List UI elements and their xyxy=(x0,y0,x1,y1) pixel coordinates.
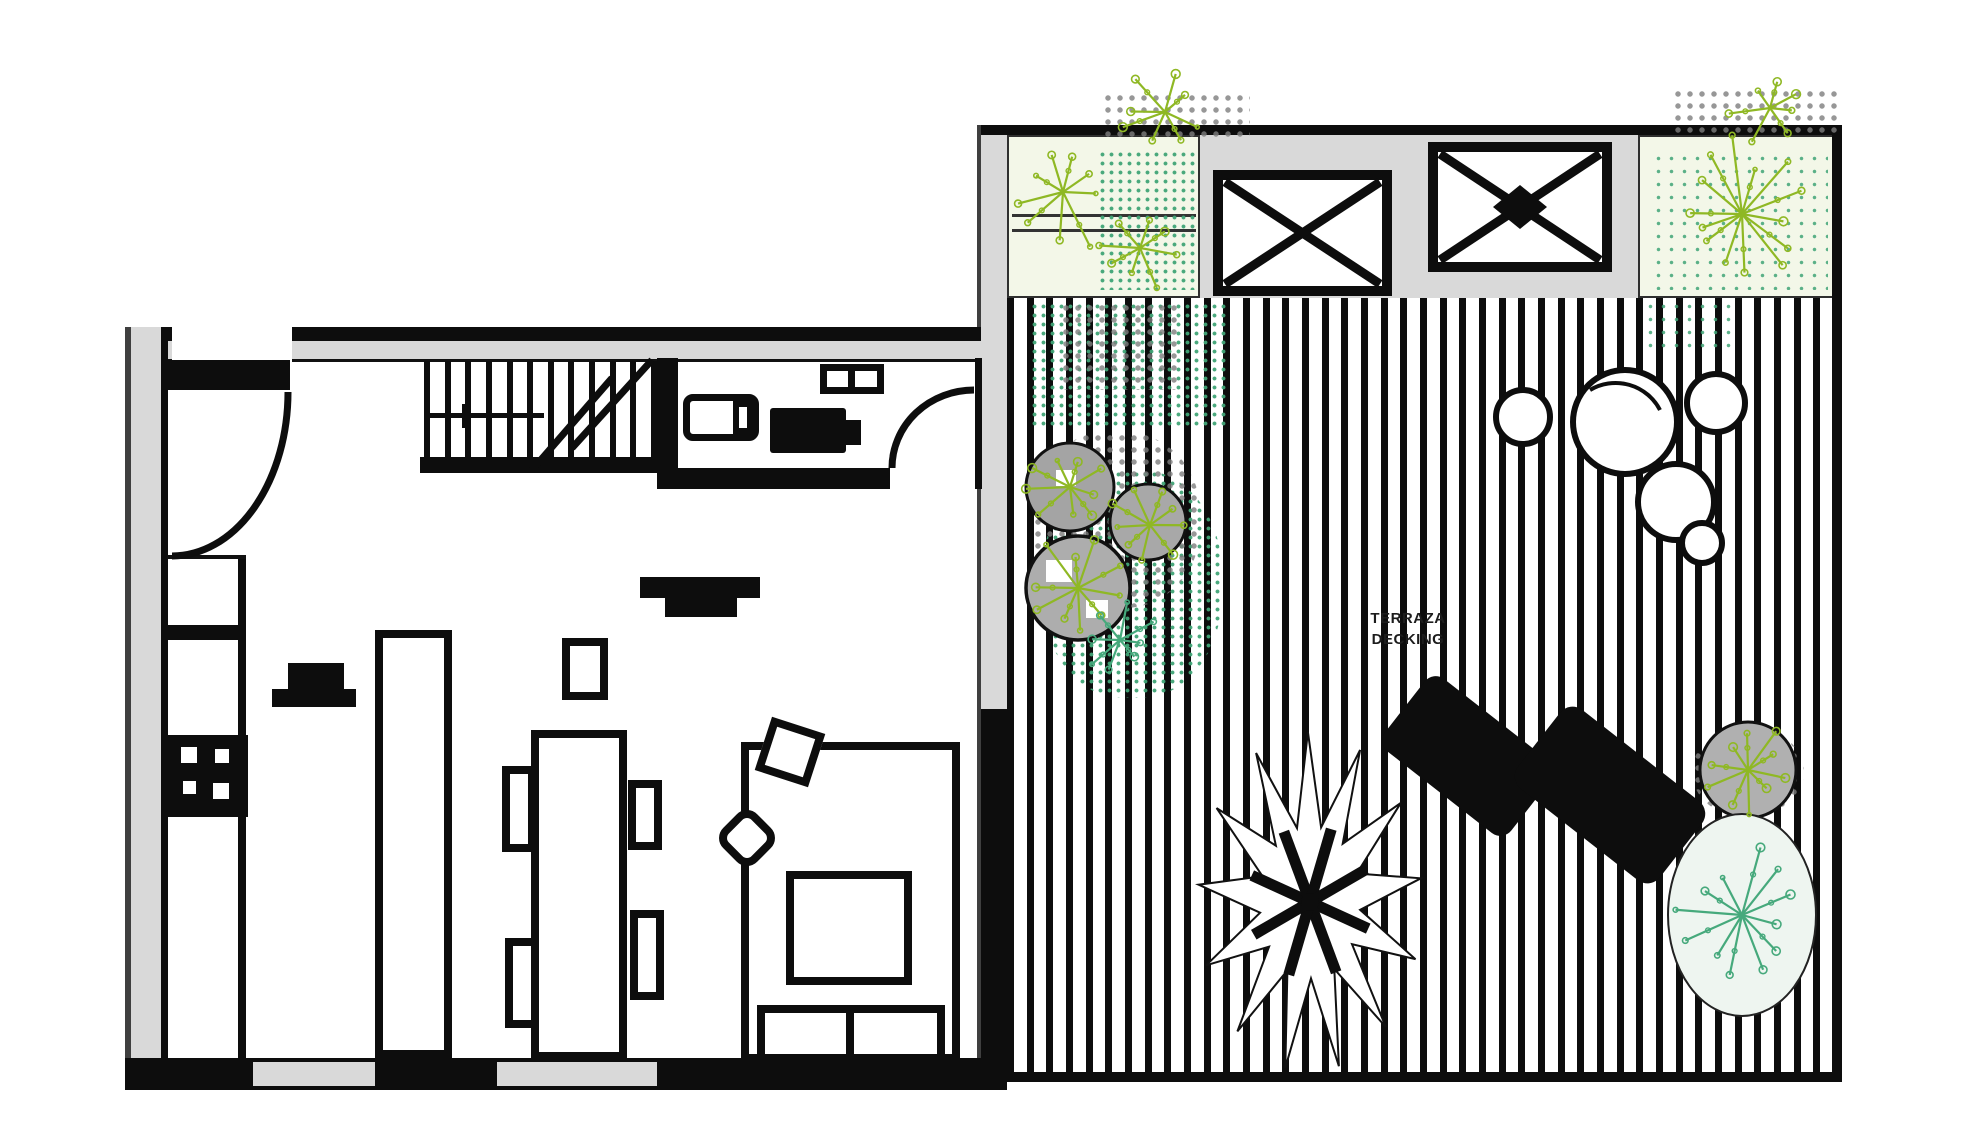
floor-plan: TERRAZA DECKING xyxy=(0,0,1964,1127)
stair-tread xyxy=(527,361,533,458)
deck-board xyxy=(1479,298,1486,1075)
planter-right-foliage xyxy=(1652,152,1828,290)
entry-door-leaf xyxy=(166,360,290,390)
deck-board xyxy=(1597,298,1604,1075)
deck-board xyxy=(1577,298,1584,1075)
deck-board xyxy=(1243,298,1250,1075)
overhang-foliage-left xyxy=(1102,92,1250,138)
bottom-right-shrub-texture xyxy=(1670,815,1816,1015)
divider-wall-lower xyxy=(981,709,1007,1085)
deck-board xyxy=(1636,298,1643,1075)
bottom-right-shrub-shadow xyxy=(1692,726,1804,818)
house-left-wall-innerline xyxy=(161,327,168,1090)
dining-chair-right-2 xyxy=(630,910,664,1000)
bathroom-window-mullion xyxy=(848,364,855,394)
kitchen-cabinet-divider xyxy=(167,625,246,640)
cooktop-burner-1 xyxy=(181,747,197,763)
deck-label-line1: TERRAZA xyxy=(1358,608,1458,629)
sofa-cushion-divider xyxy=(846,1005,854,1062)
dining-chair-left-2 xyxy=(505,938,539,1028)
deck-bottom-edge xyxy=(1007,1072,1842,1082)
deck-board xyxy=(1361,298,1368,1075)
dining-chair-top xyxy=(562,638,608,700)
planter-left-foliage xyxy=(1098,150,1196,290)
staircase-rail-tick xyxy=(462,404,467,428)
stair-tread xyxy=(589,361,595,458)
kitchen-cabinet-topline xyxy=(167,555,246,559)
stair-tread xyxy=(548,361,554,458)
deck-board xyxy=(1499,298,1506,1075)
bottom-window-1 xyxy=(253,1062,375,1086)
stair-tread xyxy=(445,361,451,458)
stair-tread xyxy=(610,361,616,458)
deck-board xyxy=(1459,298,1466,1075)
coffee-table xyxy=(786,871,912,985)
bathroom-right-line xyxy=(975,358,982,489)
cooktop-burner-2 xyxy=(215,749,229,763)
divider-wall-upper xyxy=(981,135,1007,709)
cooktop-burner-4 xyxy=(213,783,229,799)
deck-board xyxy=(1656,298,1663,1075)
stair-tread xyxy=(568,361,574,458)
dining-chair-left-1 xyxy=(502,766,536,852)
cooktop-burner-3 xyxy=(183,781,196,794)
deck-board xyxy=(1813,298,1820,1075)
staircase-bottom-stringer xyxy=(420,457,660,473)
bathroom-door-arc xyxy=(892,390,974,468)
tv-sideboard-top xyxy=(640,577,760,598)
entry-opening xyxy=(172,325,292,362)
deck-board xyxy=(1518,298,1525,1075)
deck-board xyxy=(1558,298,1565,1075)
planter-left-spill-shadow xyxy=(1060,302,1180,390)
staircase-treads xyxy=(424,361,657,458)
deck-board xyxy=(1538,298,1545,1075)
deck-board xyxy=(1400,298,1407,1075)
stair-tread xyxy=(424,361,430,458)
bathroom-sink-tab xyxy=(845,420,861,445)
toilet-cistern xyxy=(733,401,753,434)
deck-right-edge xyxy=(1832,125,1842,1082)
deck-board xyxy=(1617,298,1624,1075)
bathroom-bottom-wall xyxy=(657,468,890,489)
kitchen-island xyxy=(375,630,452,1058)
bottom-window-2 xyxy=(497,1062,657,1086)
deck-board xyxy=(1341,298,1348,1075)
overhang-foliage-right xyxy=(1672,88,1840,138)
kitchen-sink-shadow-base xyxy=(272,689,356,707)
tv-sideboard-base xyxy=(665,598,737,617)
dining-chair-right-1 xyxy=(628,780,662,850)
deck-board xyxy=(1263,298,1270,1075)
bathroom-sink xyxy=(770,408,846,453)
deck-board xyxy=(1381,298,1388,1075)
planter-right-spill xyxy=(1644,300,1734,348)
entry-door-arc xyxy=(172,392,288,556)
skylight-2 xyxy=(1428,142,1612,272)
stair-tread xyxy=(630,361,636,458)
house-left-wall-poche xyxy=(131,327,161,1090)
deck-board xyxy=(1007,298,1014,1075)
skylight-1 xyxy=(1213,170,1392,296)
stair-tread xyxy=(507,361,513,458)
stair-tread xyxy=(486,361,492,458)
cooktop xyxy=(167,735,248,817)
deck-board xyxy=(1322,298,1329,1075)
kitchen-sink-shadow-top xyxy=(288,663,344,689)
deck-board xyxy=(1282,298,1289,1075)
shrub-cluster-shadow xyxy=(1032,432,1200,608)
deck-label: TERRAZA DECKING xyxy=(1358,608,1458,656)
dining-table xyxy=(531,730,627,1060)
deck-board xyxy=(1302,298,1309,1075)
deck-label-line2: DECKING xyxy=(1358,629,1458,650)
staircase-mid-rail xyxy=(424,413,544,418)
